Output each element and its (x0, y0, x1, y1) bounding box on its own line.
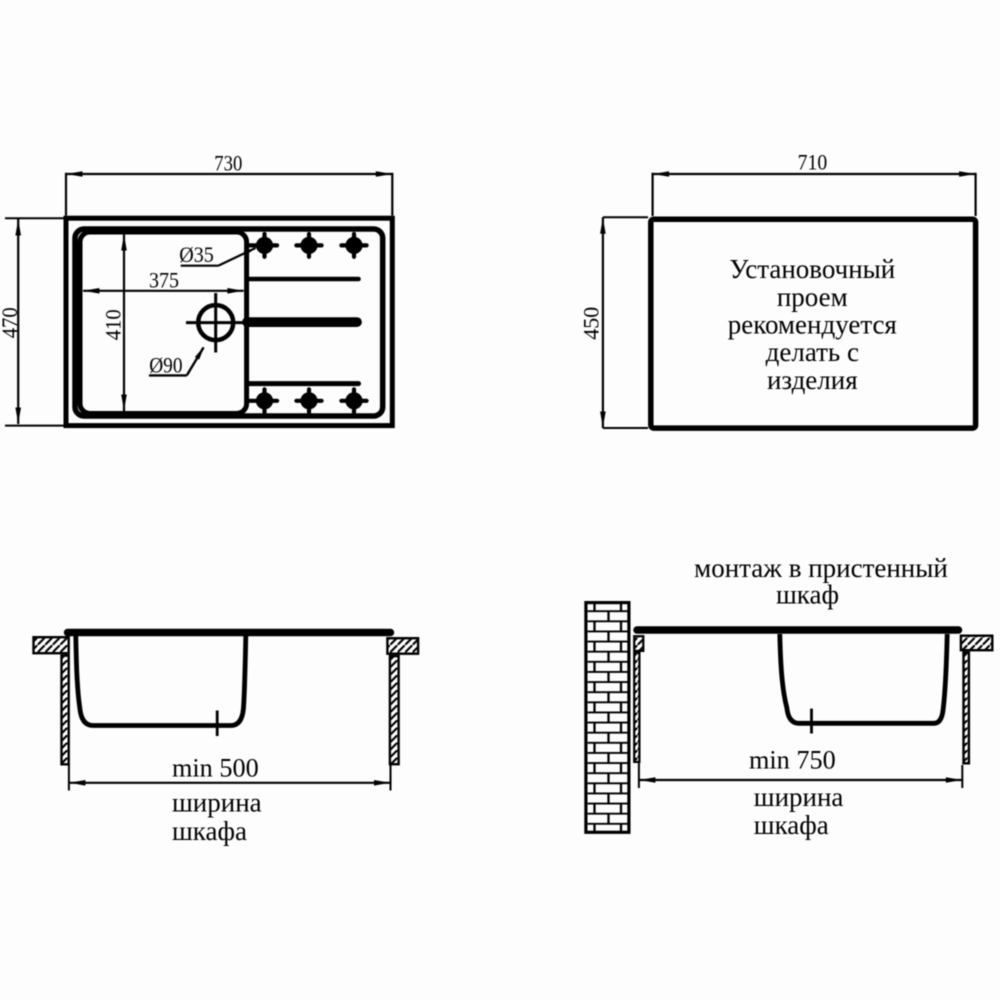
svg-text:450: 450 (579, 307, 604, 340)
svg-text:410: 410 (101, 309, 126, 340)
svg-text:монтаж в пристенный: монтаж в пристенный (694, 553, 948, 583)
svg-text:делать с: делать с (766, 337, 859, 367)
svg-text:ширина: ширина (172, 787, 262, 817)
svg-text:min 750: min 750 (749, 745, 836, 774)
svg-text:375: 375 (149, 268, 179, 293)
svg-text:470: 470 (0, 307, 22, 338)
svg-text:min 500: min 500 (172, 753, 259, 782)
svg-text:шкафа: шкафа (172, 816, 247, 846)
svg-text:шкафа: шкафа (754, 810, 829, 840)
svg-text:730: 730 (214, 150, 242, 175)
svg-text:проем: проем (777, 282, 848, 312)
svg-text:изделия: изделия (767, 365, 858, 395)
svg-text:Ø90: Ø90 (149, 353, 182, 378)
svg-text:рекомендуется: рекомендуется (728, 309, 897, 339)
svg-text:ширина: ширина (754, 782, 844, 812)
svg-text:Ø35: Ø35 (179, 242, 214, 267)
svg-text:710: 710 (798, 150, 828, 175)
svg-text:Установочный: Установочный (729, 254, 895, 284)
svg-text:шкаф: шкаф (776, 580, 839, 610)
